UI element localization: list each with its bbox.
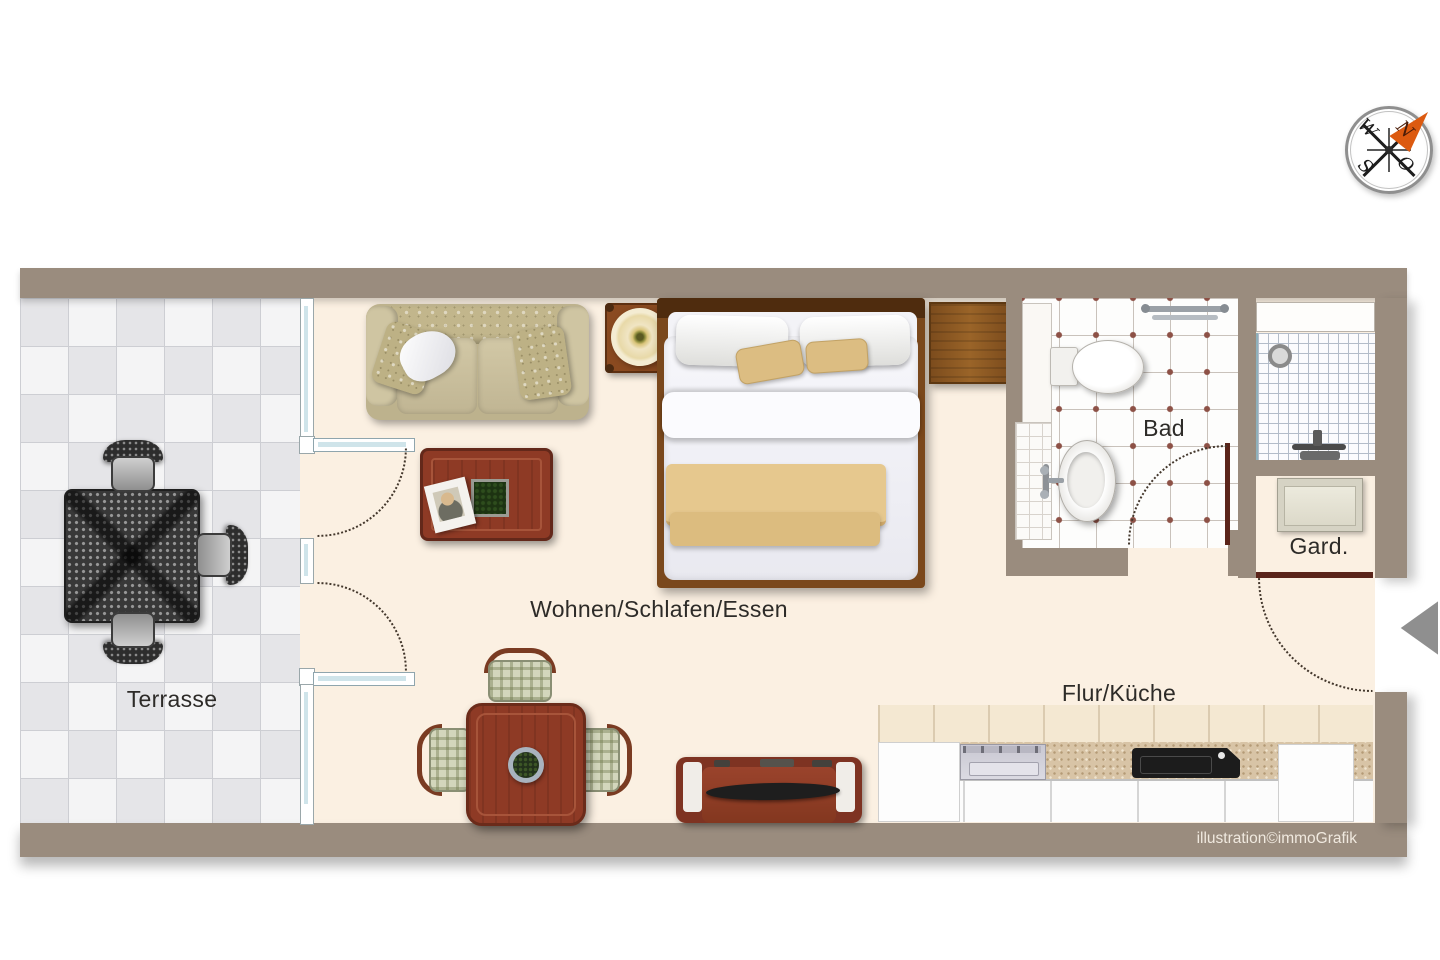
bathroom-wall-south xyxy=(1006,548,1128,576)
sink-faucet-dot xyxy=(1218,752,1225,759)
dining-chair-left xyxy=(417,718,473,802)
terrace-window-upper-glass xyxy=(304,306,308,432)
credit-label: illustration©immoGrafik xyxy=(1107,830,1357,848)
side-table-knob xyxy=(605,303,614,312)
dining-chair-cushion xyxy=(488,660,552,702)
wall-right-lower xyxy=(1375,692,1407,823)
coffee-table-plant xyxy=(471,479,509,517)
entry-arrow-icon xyxy=(1400,597,1438,659)
dining-table-bowl-contents xyxy=(513,752,539,778)
dining-chair-cushion xyxy=(429,728,471,792)
shower-fixture-riser xyxy=(1313,430,1322,446)
nightstand xyxy=(929,302,1011,384)
terrace-chair-right xyxy=(192,523,248,587)
terrace-chair-seat xyxy=(111,612,155,648)
towel-rail-second xyxy=(1152,315,1218,320)
bed-sheet-fold xyxy=(662,392,920,438)
terrace-chair-top xyxy=(101,440,165,496)
wall-top xyxy=(20,268,1407,298)
terrace-label: Terrasse xyxy=(102,686,242,713)
shower-knob xyxy=(1268,344,1292,368)
sofa xyxy=(366,304,589,420)
terrace-chair-bottom xyxy=(101,608,165,664)
bathroom-tap-handle xyxy=(1040,466,1049,475)
towel-rail xyxy=(1145,306,1225,312)
shower-wall-south xyxy=(1256,460,1375,476)
kitchen-cabinet-right xyxy=(1278,744,1354,822)
towel-rail-knob xyxy=(1220,304,1229,313)
bed-blanket-fold-lower xyxy=(670,512,880,546)
sofa-pillow-right xyxy=(511,325,572,402)
coffee-table xyxy=(420,448,553,541)
sideboard-item xyxy=(760,759,794,767)
compass: W N S O xyxy=(1345,106,1433,194)
terrace-table xyxy=(64,489,200,623)
terrace-door-lower-glass xyxy=(318,676,406,681)
dining-table xyxy=(466,703,586,826)
sideboard-item xyxy=(812,760,832,767)
stove-grate xyxy=(963,746,1041,753)
terrace-door-lower-leaf xyxy=(313,672,415,686)
towel-rail-knob xyxy=(1141,304,1150,313)
bathroom-sink-basin xyxy=(1058,440,1116,522)
toilet-bowl xyxy=(1072,340,1144,394)
sideboard-panel-left xyxy=(683,762,702,812)
kitchen-backsplash-tiles xyxy=(878,705,1373,744)
terrace-window-lower-glass xyxy=(304,692,308,804)
bathroom-door-corner xyxy=(1228,530,1256,576)
dining-table-bowl xyxy=(508,747,544,783)
bathroom-tap-handle xyxy=(1040,490,1049,499)
kitchen-cabinet-tall-left xyxy=(878,742,960,822)
kitchen-stove xyxy=(960,744,1046,780)
magazine-photo xyxy=(433,487,465,522)
wardrobe-cabinet-front xyxy=(1284,486,1356,526)
floor-plan-canvas: Terrasse Wohnen/Schlafen/Essen Bad Gard.… xyxy=(0,0,1440,960)
side-table-knob xyxy=(605,364,614,373)
terrace-chair-seat xyxy=(111,456,155,492)
sideboard-item xyxy=(714,760,730,767)
compass-center-dot xyxy=(1385,146,1393,154)
stove-handle xyxy=(969,762,1039,776)
dining-chair-top xyxy=(478,648,562,704)
terrace-door-upper-glass xyxy=(318,442,406,447)
bathroom-faucet-spout xyxy=(1048,478,1064,483)
bed-accent-pillow-right xyxy=(805,338,869,374)
living-label: Wohnen/Schlafen/Essen xyxy=(509,596,809,623)
terrace-partition-post-glass xyxy=(304,544,308,576)
sideboard xyxy=(676,757,862,823)
wardrobe-label: Gard. xyxy=(1269,533,1369,560)
terrace-chair-seat xyxy=(196,533,232,577)
bathroom-label: Bad xyxy=(1124,415,1204,442)
wall-right-upper xyxy=(1375,298,1407,578)
sideboard-panel-right xyxy=(836,762,855,812)
entry-door-leaf xyxy=(1256,572,1373,578)
kitchen-sink xyxy=(1132,748,1240,778)
double-bed xyxy=(657,298,925,588)
wardrobe-cabinet xyxy=(1277,478,1363,532)
bathroom-cabinet xyxy=(1022,303,1052,423)
hall-kitchen-label: Flur/Küche xyxy=(1039,680,1199,707)
bathroom-sink-inner xyxy=(1067,452,1105,508)
shower-fixture-plate xyxy=(1300,451,1340,460)
shower-shelf xyxy=(1256,302,1375,332)
sink-basin-line xyxy=(1140,756,1212,774)
